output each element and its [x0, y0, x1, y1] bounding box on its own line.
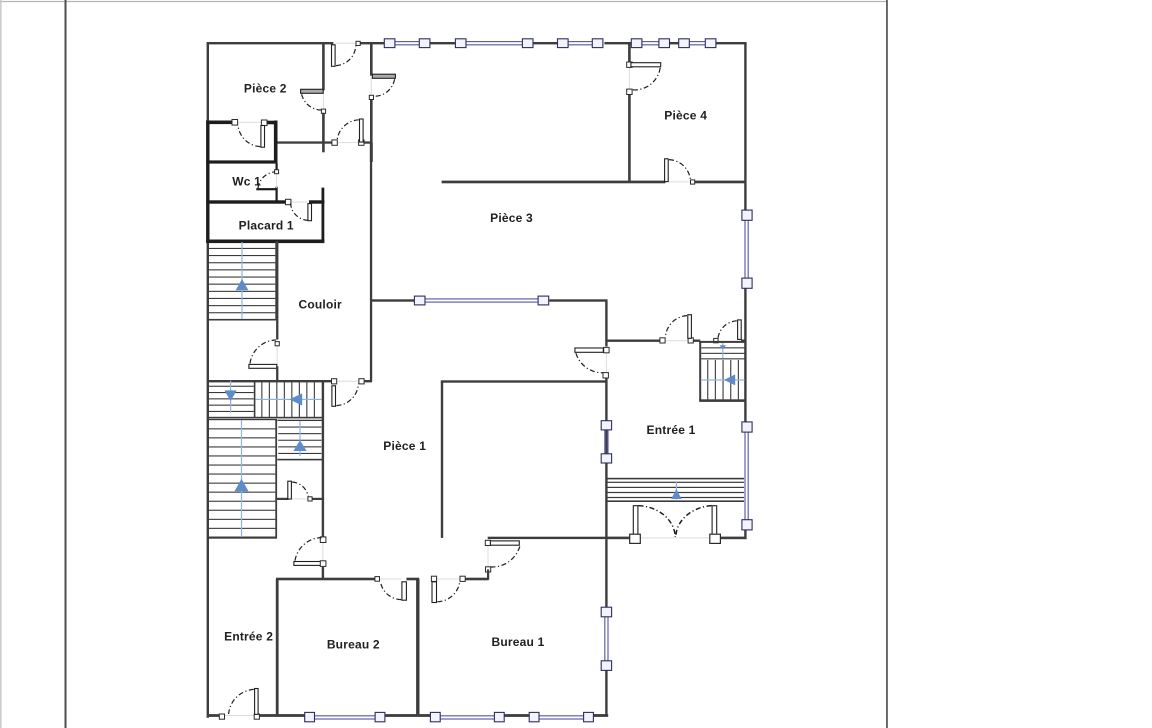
svg-text:Placard 1: Placard 1	[239, 218, 294, 232]
svg-text:Entrée 2: Entrée 2	[224, 629, 273, 643]
svg-text:Pièce 4: Pièce 4	[664, 109, 707, 123]
svg-text:Bureau 1: Bureau 1	[492, 635, 545, 649]
svg-text:Entrée 1: Entrée 1	[647, 423, 696, 437]
svg-text:Pièce 1: Pièce 1	[383, 439, 426, 453]
svg-text:Bureau 2: Bureau 2	[327, 638, 380, 652]
svg-text:Couloir: Couloir	[298, 297, 342, 311]
svg-text:Pièce 3: Pièce 3	[490, 211, 533, 225]
svg-text:Wc 1: Wc 1	[232, 174, 261, 188]
svg-text:Pièce 2: Pièce 2	[244, 81, 287, 95]
